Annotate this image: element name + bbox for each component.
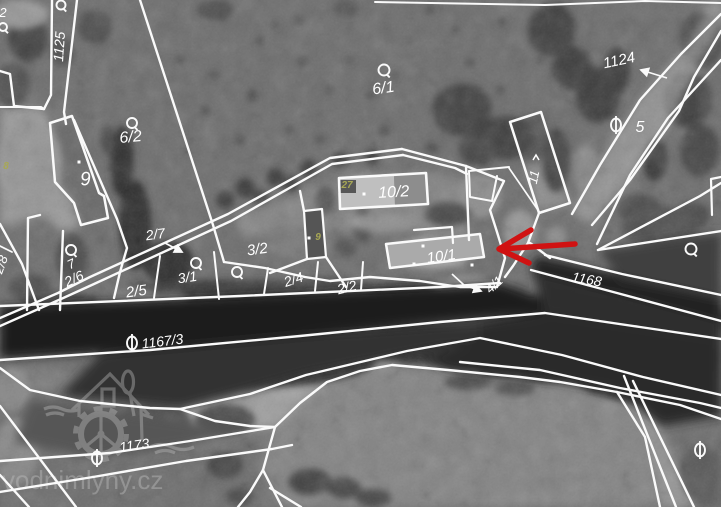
svg-text:2/5: 2/5 <box>124 282 149 302</box>
svg-text:2/7: 2/7 <box>144 225 168 244</box>
svg-text:27: 27 <box>340 180 353 191</box>
svg-text:6/1: 6/1 <box>371 79 395 99</box>
svg-text:9: 9 <box>315 232 321 243</box>
svg-text:3/2: 3/2 <box>246 240 270 260</box>
svg-text:8: 8 <box>3 161 9 172</box>
svg-text:2: 2 <box>0 5 7 20</box>
svg-text:5: 5 <box>636 119 645 136</box>
svg-text:10/2: 10/2 <box>378 183 410 202</box>
svg-text:1125: 1125 <box>50 31 68 62</box>
svg-text:3/1: 3/1 <box>177 268 199 287</box>
svg-text:6/2: 6/2 <box>119 128 143 147</box>
